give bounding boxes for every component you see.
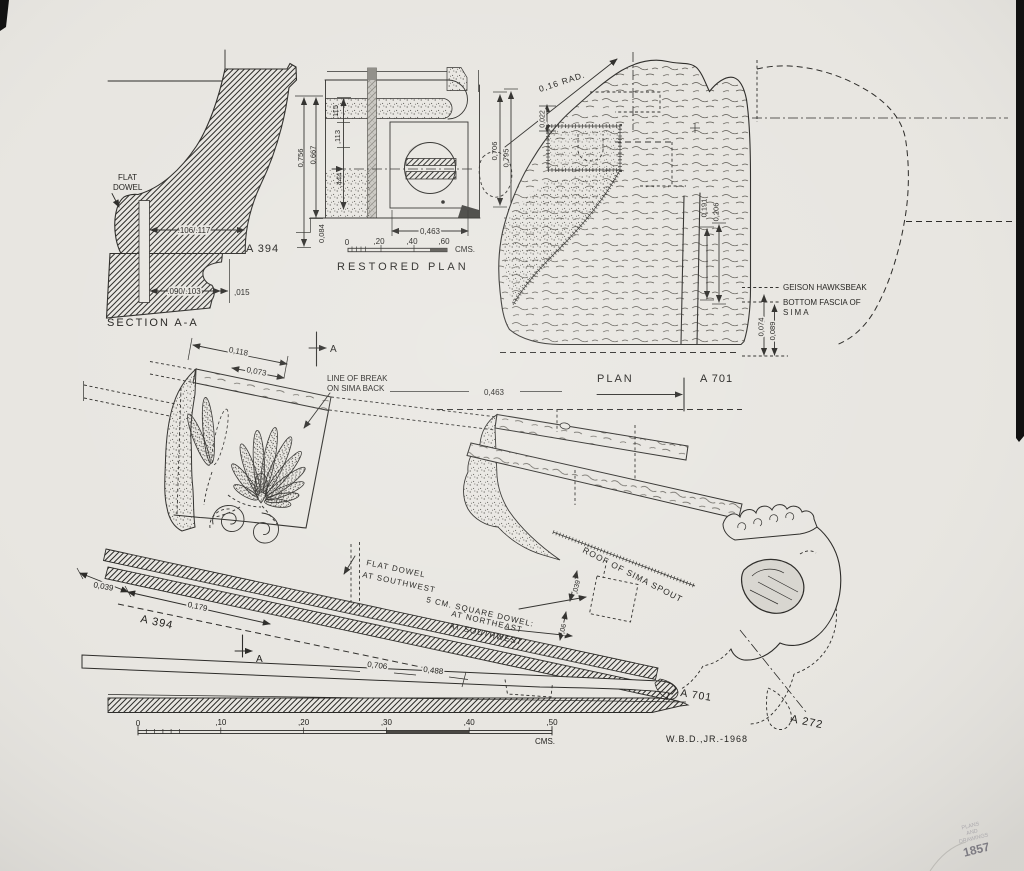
dim-face: .106/.117 — [178, 226, 211, 235]
geison-profile-hatched — [107, 254, 223, 319]
dim-706: 0,706 — [490, 142, 499, 161]
dim-089: 0,089 — [768, 322, 777, 341]
mscale-0: 0 — [136, 719, 141, 728]
dim-offset: ,015 — [234, 288, 250, 297]
dim-115: ,115 — [331, 105, 340, 119]
dim-191: 0,191 — [700, 199, 709, 218]
section-marker-bottom: A — [256, 654, 263, 665]
dim-463: 0,463 — [420, 227, 441, 236]
mscale-10: ,10 — [215, 718, 227, 727]
mscale-unit: CMS. — [535, 737, 555, 746]
note-break-2: ON SIMA BACK — [327, 384, 385, 393]
author-credit: W.B.D.,JR.-1968 — [666, 734, 748, 744]
dim-113: ,113 — [333, 130, 342, 144]
note-break-1: LINE OF BREAK — [327, 374, 388, 383]
drawing-sheet: FLAT DOWEL .106/.117 A 394 .090/.103 ,01… — [0, 0, 1024, 871]
dim-463-elev: 0,463 — [484, 388, 505, 397]
dowel-cutting — [548, 126, 620, 170]
plan-lower-stipple — [326, 170, 370, 217]
restored-plan-title: RESTORED PLAN — [337, 261, 469, 273]
scale-60: ,60 — [438, 237, 450, 246]
horizontal-geison-band — [108, 698, 688, 713]
mscale-50: ,50 — [546, 718, 558, 727]
dim-height-outer: 0,756 — [296, 149, 305, 168]
dowel-bar-upper — [406, 159, 456, 166]
dim-height-inner: 0,667 — [309, 146, 318, 165]
scale-40: ,40 — [406, 237, 418, 246]
section-title: SECTION A-A — [107, 317, 199, 329]
mscale-30: ,30 — [381, 718, 393, 727]
dim-022: 0,022 — [540, 110, 547, 128]
mscale-20: ,20 — [298, 718, 310, 727]
flat-dowel-label-2: DOWEL — [113, 183, 143, 192]
scan-edge-right — [1016, 0, 1024, 442]
paper-background — [0, 0, 1024, 871]
plan-top-band-stipple — [326, 99, 453, 119]
section-marker-top: A — [330, 344, 337, 355]
technical-drawing: FLAT DOWEL .106/.117 A 394 .090/.103 ,01… — [0, 0, 1024, 871]
note-hawksbeak: GEISON HAWKSBEAK — [783, 283, 867, 292]
dim-bottom: .090/.103 — [167, 287, 201, 296]
dowel-bar-lower — [406, 172, 456, 180]
catalog-a701-plan: A 701 — [700, 373, 733, 385]
flat-dowel-label-1: FLAT — [118, 173, 137, 182]
dim-074: 0,074 — [757, 318, 766, 337]
dim-444: ,444 — [335, 173, 344, 188]
note-fascia-2: SIMA — [783, 308, 811, 317]
dim-206: 0,206 — [712, 203, 721, 222]
scale-unit: CMS. — [455, 245, 475, 254]
note-fascia-1: BOTTOM FASCIA OF — [783, 298, 861, 307]
flat-dowel-slot — [139, 201, 150, 303]
dim-795: 0,795 — [502, 149, 511, 168]
dowel-hole — [405, 143, 456, 194]
plan-title: PLAN — [597, 373, 634, 385]
mscale-40: ,40 — [464, 718, 476, 727]
catalog-a394: A 394 — [246, 243, 279, 255]
scale-0: 0 — [345, 238, 350, 247]
dim-084: 0,084 — [317, 224, 326, 243]
scale-20: ,20 — [373, 237, 385, 246]
